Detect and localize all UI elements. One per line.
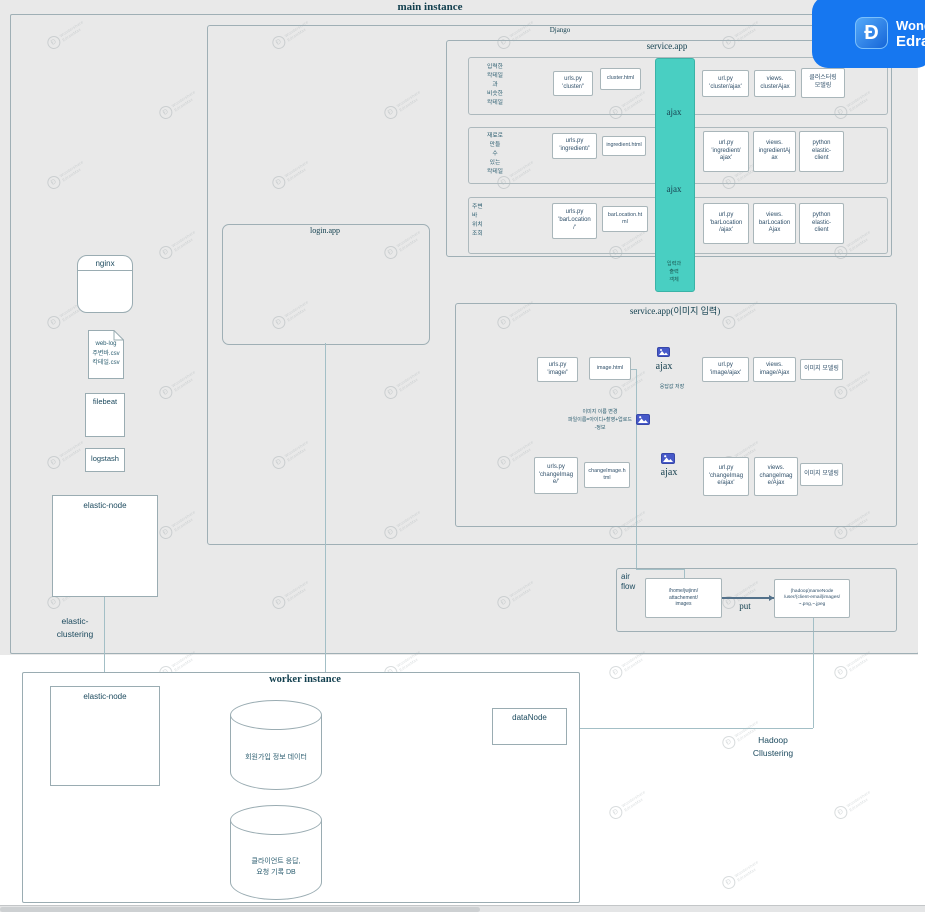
edrawmax-logo-icon: Ð [855,17,888,49]
right-edge-strip [918,0,925,912]
urls-image-box[interactable]: urls.py 'image/' [537,357,578,382]
changeimage-html-box[interactable]: changeImage.h tml [584,462,630,488]
django-title: Django [490,26,630,34]
ajax-pipeline-bar[interactable] [655,58,695,292]
image-icon [661,453,675,464]
elastic-clustering-label: elastic- clustering [35,615,115,641]
image-icon [636,414,650,425]
clustering-model-box[interactable]: 클러스터링 모델링 [801,68,845,98]
put-arrow-line [722,597,774,599]
cylinder-top [230,805,322,835]
login-app-title: login.app [255,226,395,235]
worker-instance-title: worker instance [235,674,375,685]
barlocation-row-note: 주변 바 위치 조회 [472,203,502,239]
image-icon [657,347,670,357]
image-app-container[interactable] [455,303,897,527]
python-elastic-client-box-1[interactable]: python elastic- client [799,131,844,172]
elastic-node-worker[interactable]: elastic-node [50,686,160,786]
horizontal-scrollbar-thumb[interactable] [0,907,480,912]
connector-login-to-db [325,343,326,692]
watermark-logo-icon: Ɖ [832,663,850,681]
watermark-logo-icon: Ɖ [832,803,850,821]
watermark-stamp: ƉWondershareEdrawMax [720,858,763,892]
ajax-bar-note: 입력과 출력 객체 [655,260,693,284]
watermark-stamp: ƉWondershareEdrawMax [832,788,875,822]
service-app-title: service.app [597,41,737,51]
watermark-logo-icon: Ɖ [607,803,625,821]
airflow-hdfs-path-box[interactable]: (hadoop)nameNode /user/(client-email)ima… [774,579,850,618]
badge-brand-line2: EdrawMax [896,33,925,50]
client-log-db-cylinder[interactable]: 클라이언트 응답, 요청 기록 DB [230,805,322,900]
nginx-divider [78,270,132,271]
put-label: put [730,601,760,611]
watermark-text: WondershareEdrawMax [733,859,761,882]
main-instance-title: main instance [330,1,530,13]
views-imageajax-box[interactable]: views. image/Ajax [753,357,796,382]
elastic-node-main-label: elastic-node [53,496,157,510]
ajax-label-top: ajax [655,107,693,117]
datanode-label: dataNode [493,709,566,722]
logstash-node[interactable]: logstash [85,448,125,472]
hadoop-clustering-label: Hadoop Cllustering [733,734,813,760]
signup-db-cylinder[interactable]: 회원가입 정보 데이터 [230,700,322,790]
url-ingredient-ajax-box[interactable]: url.py 'ingredient/ ajax' [703,131,749,172]
edrawmax-badge: Ð Wondershare EdrawMax [812,0,925,68]
views-barlocationajax-box[interactable]: views. barLocation Ajax [753,203,796,244]
url-barlocation-ajax-box[interactable]: url.py 'barLocation /ajax' [703,203,749,244]
watermark-stamp: ƉWondershareEdrawMax [607,788,650,822]
filebeat-node[interactable]: filebeat [85,393,125,437]
connector-hadoop-datanode-h [567,728,813,729]
image-model-box-1[interactable]: 이미지 모델링 [800,359,843,380]
airflow-local-path-box[interactable]: /home/jwjinn/ attachement/ images [645,578,722,618]
ingredient-html-box[interactable]: ingredient.html [602,136,646,156]
client-log-db-label: 클라이언트 응답, 요청 기록 DB [230,857,322,878]
image-app-title: service.app(이미지 입력) [595,304,755,317]
url-cluster-ajax-box[interactable]: url.py 'cluster/ajax' [702,70,749,97]
url-changeimage-ajax-box[interactable]: url.py 'changeImag e/ajax' [703,457,749,496]
filebeat-label: filebeat [86,394,124,406]
cylinder-top [230,700,322,730]
urls-changeimage-box[interactable]: urls.py 'changeImag e/' [534,457,578,494]
datanode-box[interactable]: dataNode [492,708,567,745]
barlocation-html-box[interactable]: barLocation.ht ml [602,206,648,232]
urls-barlocation-box[interactable]: urls.py 'barLocation /' [552,203,597,239]
weblog-label: web-log 주변바.csv 칵테일.csv [88,340,124,369]
watermark-text: WondershareEdrawMax [845,789,873,812]
horizontal-scrollbar-track[interactable] [0,905,925,912]
save-response-note: 응답값 저장 [650,384,694,392]
elastic-node-worker-label: elastic-node [51,687,159,701]
nginx-label: nginx [78,256,132,268]
views-ingredientajax-box[interactable]: views. ingredientAj ax [753,131,796,172]
image-model-box-2[interactable]: 이미지 모델링 [800,463,843,486]
watermark-logo-icon: Ɖ [720,873,738,891]
url-image-ajax-box[interactable]: url.py 'image/ajax' [702,357,749,382]
logstash-label: logstash [86,449,124,463]
connector-hadoop-datanode-v [813,618,814,728]
image-ajax-label-1: ajax [648,361,680,372]
image-html-box[interactable]: image.html [589,357,631,380]
elastic-node-main[interactable]: elastic-node [52,495,158,597]
views-changeimageajax-box[interactable]: views. changeImag e/Ajax [754,457,798,496]
logo-glyph: Ð [864,23,878,43]
cluster-html-box[interactable]: cluster.html [600,68,641,90]
ingredient-row-note: 재료로 만들 수 있는 칵테일 [470,132,520,177]
badge-brand-line1: Wondershare [896,18,925,33]
python-elastic-client-box-2[interactable]: python elastic- client [799,203,844,244]
watermark-logo-icon: Ɖ [607,663,625,681]
login-app-container[interactable] [222,224,430,345]
urls-cluster-box[interactable]: urls.py 'cluster/' [553,71,593,96]
diagram-canvas: ƉWondershareEdrawMaxƉWondershareEdrawMax… [0,0,925,912]
signup-db-label: 회원가입 정보 데이터 [230,752,322,762]
ajax-label-mid: ajax [655,184,693,194]
cluster-row-note: 입력한 칵테일 과 비슷한 칵테일 [470,63,520,108]
nginx-node[interactable]: nginx [77,255,133,313]
watermark-text: WondershareEdrawMax [620,789,648,812]
badge-text: Wondershare EdrawMax [896,18,925,50]
urls-ingredient-box[interactable]: urls.py 'ingredient/' [552,133,597,159]
views-clusterajax-box[interactable]: views. clusterAjax [754,70,796,97]
image-ajax-label-2: ajax [653,467,685,478]
